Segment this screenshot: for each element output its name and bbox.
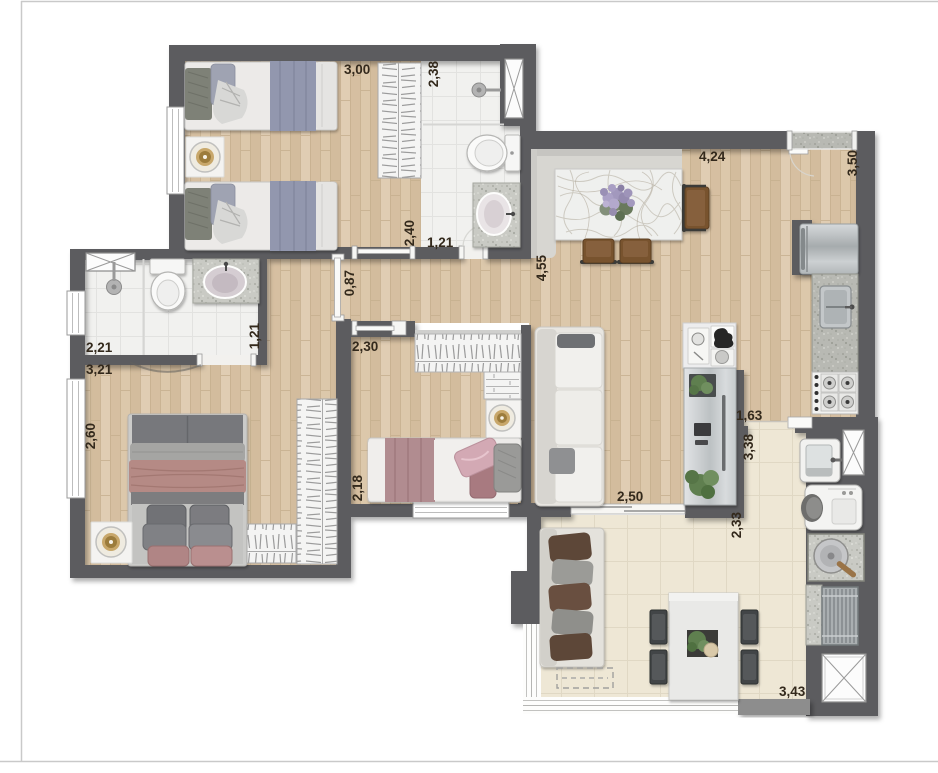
svg-text:3,21: 3,21 (86, 362, 113, 377)
svg-text:2,40: 2,40 (402, 220, 417, 246)
svg-text:2,18: 2,18 (350, 475, 365, 502)
svg-text:4,24: 4,24 (699, 149, 726, 164)
svg-text:2,50: 2,50 (617, 489, 643, 504)
svg-text:2,33: 2,33 (729, 512, 744, 539)
svg-text:4,55: 4,55 (534, 255, 549, 282)
svg-text:1,21: 1,21 (427, 235, 454, 250)
svg-text:2,30: 2,30 (352, 339, 378, 354)
svg-text:0,87: 0,87 (342, 270, 357, 296)
svg-text:1,63: 1,63 (736, 408, 763, 423)
svg-text:3,50: 3,50 (845, 150, 860, 176)
svg-text:3,43: 3,43 (779, 684, 806, 699)
svg-text:2,60: 2,60 (83, 423, 98, 449)
svg-text:3,38: 3,38 (741, 434, 756, 461)
svg-text:2,21: 2,21 (86, 340, 113, 355)
svg-text:1,21: 1,21 (247, 323, 262, 350)
svg-text:3,00: 3,00 (344, 62, 370, 77)
svg-text:2,38: 2,38 (426, 61, 441, 88)
